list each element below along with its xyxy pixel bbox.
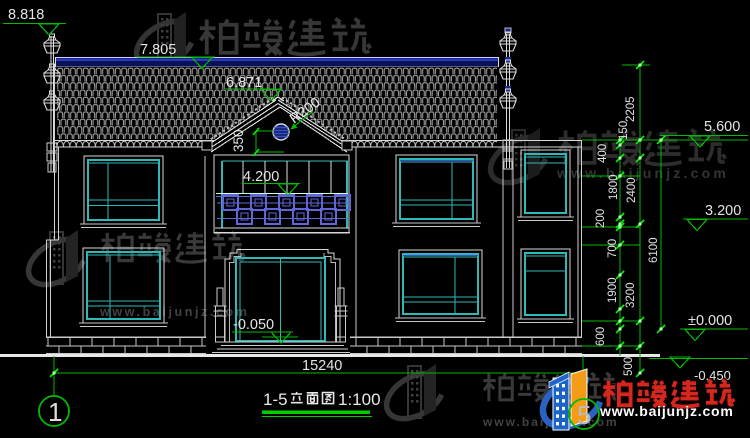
svg-text:3200: 3200 <box>625 282 637 308</box>
svg-text:700: 700 <box>607 239 619 258</box>
svg-text:1: 1 <box>48 397 62 427</box>
svg-text:1900: 1900 <box>607 277 619 303</box>
svg-text:3.200: 3.200 <box>705 203 741 219</box>
svg-text:1-5: 1-5 <box>263 390 288 409</box>
svg-text:2400: 2400 <box>626 177 638 203</box>
svg-text:1800: 1800 <box>608 174 620 200</box>
svg-text:6100: 6100 <box>648 237 660 263</box>
svg-text:5: 5 <box>577 400 591 430</box>
svg-text:www.baijunjz.com: www.baijunjz.com <box>599 403 734 419</box>
svg-text:500: 500 <box>623 357 635 376</box>
svg-text:4.200: 4.200 <box>243 169 279 185</box>
svg-text:www.baijunjz.com: www.baijunjz.com <box>99 305 249 319</box>
svg-text:350: 350 <box>231 129 246 152</box>
svg-text:150: 150 <box>618 121 630 140</box>
svg-text:7.805: 7.805 <box>140 42 176 58</box>
svg-text:200: 200 <box>595 209 607 228</box>
svg-text:±0.000: ±0.000 <box>688 313 732 329</box>
svg-text:400: 400 <box>597 144 609 163</box>
svg-text:15240: 15240 <box>302 358 342 374</box>
svg-text:6.871: 6.871 <box>226 75 262 91</box>
svg-text:5.600: 5.600 <box>704 119 740 135</box>
svg-text:8.818: 8.818 <box>8 7 44 23</box>
svg-text:-0.050: -0.050 <box>233 317 274 333</box>
svg-text:600: 600 <box>595 327 607 346</box>
svg-text:2205: 2205 <box>625 96 637 122</box>
svg-text:1:100: 1:100 <box>338 390 381 409</box>
